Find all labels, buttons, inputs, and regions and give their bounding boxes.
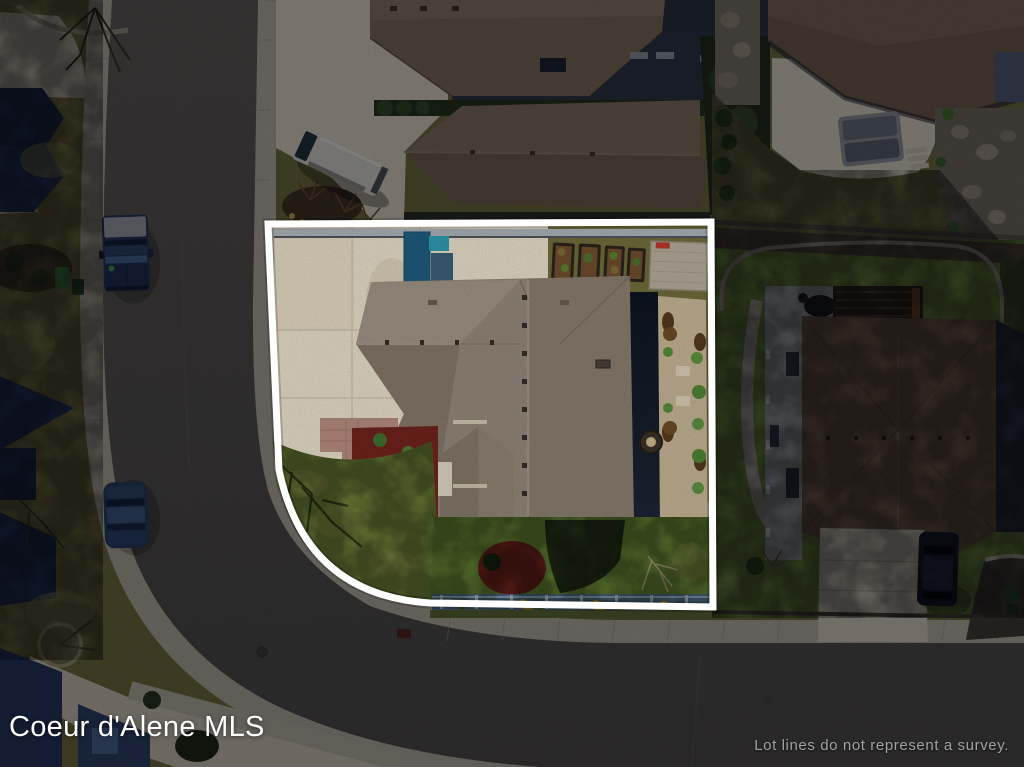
lot-line-disclaimer: Lot lines do not represent a survey. (754, 737, 1009, 754)
aerial-photo: Coeur d'Alene MLS Lot lines do not repre… (0, 0, 1024, 767)
mls-watermark: Coeur d'Alene MLS (9, 711, 265, 744)
aerial-photo-canvas (0, 0, 1024, 767)
